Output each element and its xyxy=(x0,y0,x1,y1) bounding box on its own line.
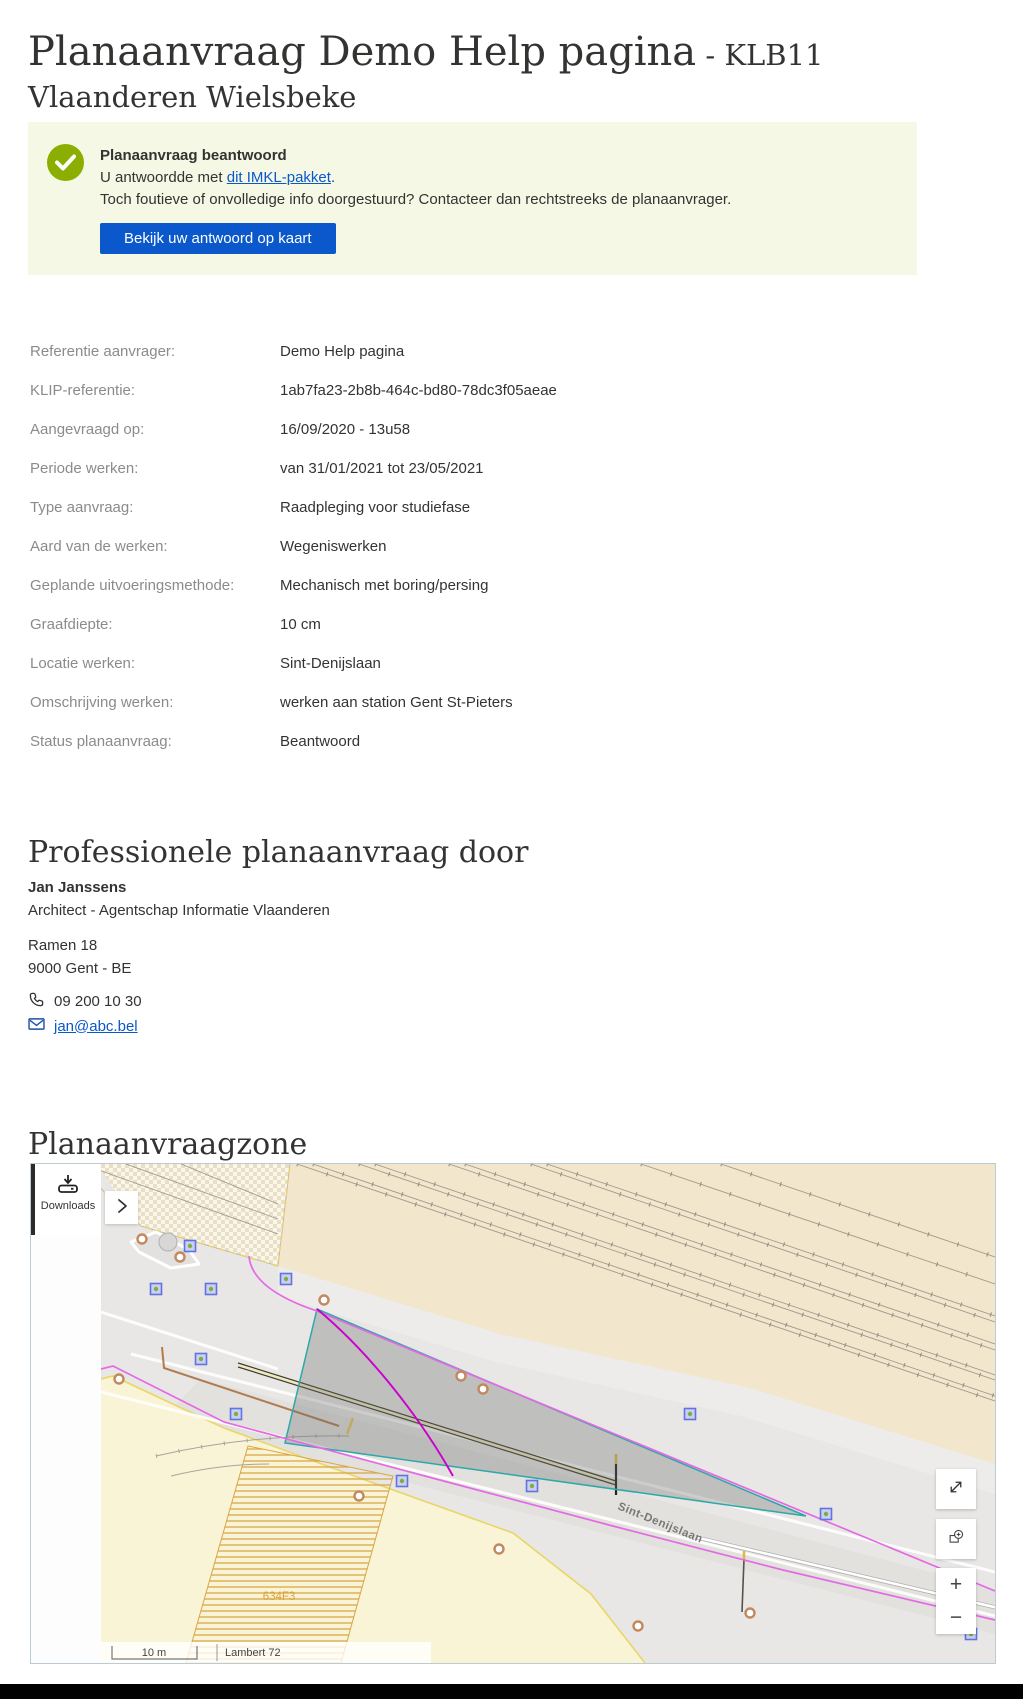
downloads-label: Downloads xyxy=(35,1200,101,1212)
detail-row: Graafdiepte:10 cm xyxy=(30,614,910,636)
detail-row: Geplande uitvoeringsmethode:Mechanisch m… xyxy=(30,575,910,597)
phone-icon xyxy=(28,991,45,1012)
banner-line2: Toch foutieve of onvolledige info doorge… xyxy=(100,191,731,208)
requester-name: Jan Janssens xyxy=(28,879,126,896)
page-title: Planaanvraag Demo Help pagina - KLB11 Vl… xyxy=(28,26,958,117)
requester-phone-row: 09 200 10 30 xyxy=(28,991,142,1012)
detail-label: Type aanvraag: xyxy=(30,497,280,519)
detail-label: Aangevraagd op: xyxy=(30,419,280,441)
requester-heading: Professionele planaanvraag door xyxy=(28,835,528,870)
detail-value: Demo Help pagina xyxy=(280,341,404,363)
envelope-icon xyxy=(28,1017,45,1035)
detail-value: Sint-Denijslaan xyxy=(280,653,381,675)
zoom-out-button[interactable]: − xyxy=(936,1601,976,1634)
requester-role: Architect - Agentschap Informatie Vlaand… xyxy=(28,902,330,919)
map-section-heading: Planaanvraagzone xyxy=(28,1127,307,1162)
requester-address-line1: Ramen 18 xyxy=(28,937,97,954)
projection-label: Lambert 72 xyxy=(225,1647,281,1659)
detail-row: Type aanvraag:Raadpleging voor studiefas… xyxy=(30,497,910,519)
detail-row: KLIP-referentie:1ab7fa23-2b8b-464c-bd80-… xyxy=(30,380,910,402)
request-details-list: Referentie aanvrager:Demo Help pagina KL… xyxy=(30,341,910,770)
detail-row: Periode werken:van 31/01/2021 tot 23/05/… xyxy=(30,458,910,480)
success-banner: Planaanvraag beantwoord U antwoordde met… xyxy=(28,122,917,275)
detail-value: van 31/01/2021 tot 23/05/2021 xyxy=(280,458,484,480)
imkl-package-link[interactable]: dit IMKL-pakket xyxy=(227,169,331,186)
requester-phone: 09 200 10 30 xyxy=(54,993,142,1010)
plus-icon: + xyxy=(950,1574,962,1595)
download-icon xyxy=(35,1174,101,1198)
detail-label: Status planaanvraag: xyxy=(30,731,280,753)
footer-bar xyxy=(0,1684,1023,1699)
chevron-right-icon xyxy=(115,1198,129,1218)
detail-row: Referentie aanvrager:Demo Help pagina xyxy=(30,341,910,363)
detail-row: Locatie werken:Sint-Denijslaan xyxy=(30,653,910,675)
detail-row: Status planaanvraag:Beantwoord xyxy=(30,731,910,753)
zoom-controls: + − xyxy=(936,1568,976,1634)
requester-email-row: jan@abc.bel xyxy=(28,1017,138,1035)
requester-address-line2: 9000 Gent - BE xyxy=(28,960,131,977)
map-canvas[interactable]: 634F3 xyxy=(101,1164,995,1663)
detail-label: Locatie werken: xyxy=(30,653,280,675)
detail-value: Wegeniswerken xyxy=(280,536,386,558)
detail-value: 10 cm xyxy=(280,614,321,636)
downloads-button[interactable]: Downloads xyxy=(31,1164,101,1235)
detail-label: KLIP-referentie: xyxy=(30,380,280,402)
minus-icon: − xyxy=(950,1607,962,1628)
banner-line1-suffix: . xyxy=(331,169,335,186)
detail-value: Beantwoord xyxy=(280,731,360,753)
map-scale-strip: 10 m Lambert 72 xyxy=(101,1642,431,1663)
map-sidebar-column xyxy=(31,1164,101,1663)
detail-value: Mechanisch met boring/persing xyxy=(280,575,488,597)
detail-row: Omschrijving werken:werken aan station G… xyxy=(30,692,910,714)
requester-email-link[interactable]: jan@abc.bel xyxy=(54,1018,138,1035)
detail-value: 1ab7fa23-2b8b-464c-bd80-78dc3f05aeae xyxy=(280,380,557,402)
detail-label: Aard van de werken: xyxy=(30,536,280,558)
zoom-extent-icon xyxy=(945,1526,967,1552)
planaanvraag-page: Planaanvraag Demo Help pagina - KLB11 Vl… xyxy=(0,0,1023,1699)
detail-label: Graafdiepte: xyxy=(30,614,280,636)
planaanvraagzone-map[interactable]: Downloads xyxy=(30,1163,996,1664)
detail-label: Referentie aanvrager: xyxy=(30,341,280,363)
banner-line1: U antwoordde met dit IMKL-pakket. xyxy=(100,169,335,186)
detail-value: Raadpleging voor studiefase xyxy=(280,497,470,519)
parcel-label: 634F3 xyxy=(263,1591,296,1603)
banner-title: Planaanvraag beantwoord xyxy=(100,147,287,164)
expand-icon xyxy=(945,1476,967,1502)
detail-row: Aangevraagd op:16/09/2020 - 13u58 xyxy=(30,419,910,441)
detail-value: werken aan station Gent St-Pieters xyxy=(280,692,513,714)
zoom-in-button[interactable]: + xyxy=(936,1568,976,1601)
detail-row: Aard van de werken:Wegeniswerken xyxy=(30,536,910,558)
detail-value: 16/09/2020 - 13u58 xyxy=(280,419,410,441)
detail-label: Omschrijving werken: xyxy=(30,692,280,714)
scale-label: 10 m xyxy=(142,1647,166,1659)
detail-label: Periode werken: xyxy=(30,458,280,480)
checkmark-circle-icon xyxy=(47,144,84,181)
banner-line1-prefix: U antwoordde met xyxy=(100,169,227,186)
fullscreen-button[interactable] xyxy=(936,1469,976,1509)
view-answer-on-map-button[interactable]: Bekijk uw antwoord op kaart xyxy=(100,223,336,254)
zoom-to-extent-button[interactable] xyxy=(936,1519,976,1559)
page-title-main: Planaanvraag Demo Help pagina xyxy=(28,29,696,75)
expand-panel-button[interactable] xyxy=(105,1191,138,1224)
detail-label: Geplande uitvoeringsmethode: xyxy=(30,575,280,597)
